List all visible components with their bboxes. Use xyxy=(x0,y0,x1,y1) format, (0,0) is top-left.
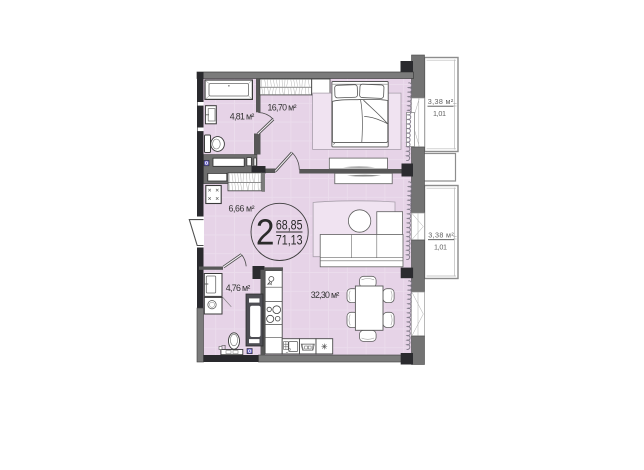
svg-text:1,01: 1,01 xyxy=(434,243,447,252)
svg-text:68,85: 68,85 xyxy=(276,218,303,233)
svg-text:4,76 м²: 4,76 м² xyxy=(226,283,251,293)
svg-text:1,01: 1,01 xyxy=(433,109,446,118)
svg-text:6,66 м²: 6,66 м² xyxy=(229,204,255,214)
svg-text:71,13: 71,13 xyxy=(276,233,303,248)
svg-text:2: 2 xyxy=(256,212,275,253)
svg-text:3,38 м²: 3,38 м² xyxy=(428,231,454,240)
svg-text:4,81 м²: 4,81 м² xyxy=(230,112,255,122)
svg-text:32,30 м²: 32,30 м² xyxy=(311,290,340,300)
svg-text:3,38 м²: 3,38 м² xyxy=(428,97,454,106)
svg-text:16,70 м²: 16,70 м² xyxy=(268,103,297,113)
